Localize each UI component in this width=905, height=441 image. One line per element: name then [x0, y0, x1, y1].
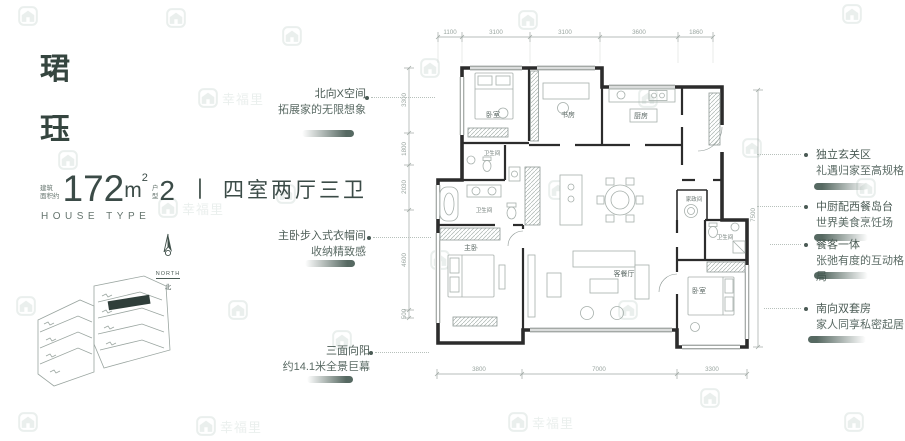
type-number: 2	[159, 176, 175, 206]
separator-bar: 丨	[189, 174, 211, 206]
room-label-bedroom-tl: 卧室	[486, 110, 500, 119]
house-logo-icon	[844, 412, 864, 432]
house-logo-icon	[18, 412, 38, 432]
svg-text:4600: 4600	[401, 253, 408, 267]
leader-dot	[804, 153, 808, 157]
dimension-left: 3300 1800 2030 4600 500	[401, 66, 414, 320]
leader-line	[757, 206, 801, 207]
svg-text:3300: 3300	[705, 366, 719, 373]
room-label-bath-right: 卫生间	[717, 233, 734, 241]
annotation-south-suites: 南向双套房 家人同享私密起居	[816, 301, 904, 333]
leader-line	[373, 237, 431, 238]
house-logo-icon	[18, 6, 38, 26]
dimension-bottom: 3800 7000 3300	[435, 366, 749, 379]
watermark	[18, 412, 38, 432]
svg-text:3600: 3600	[632, 29, 646, 36]
room-layout-text: 四室两厅三卫	[223, 176, 367, 206]
watermark: 幸福里	[508, 412, 574, 432]
gradient-tag	[808, 336, 866, 343]
house-logo-icon	[196, 416, 216, 436]
room-label-bath-upper: 卫生间	[484, 149, 501, 157]
leader-dot	[369, 351, 373, 355]
watermark	[228, 300, 248, 320]
floorplan-page: 幸福里幸福里幸福里幸福里 珺 珏 建筑 面积约 172 m2 户 型 2 丨 四…	[0, 0, 905, 441]
watermark	[18, 6, 38, 26]
svg-text:7000: 7000	[592, 366, 606, 373]
type-prefix: 户 型	[152, 185, 159, 206]
house-logo-icon	[166, 8, 186, 28]
gradient-tag	[814, 183, 868, 190]
leader-line	[770, 244, 801, 245]
room-label-bedroom-br: 卧室	[692, 286, 706, 295]
svg-text:1100: 1100	[443, 29, 457, 36]
house-logo-icon	[842, 4, 862, 24]
house-logo-icon	[228, 300, 248, 320]
watermark	[166, 8, 186, 28]
watermark-text: 幸福里	[220, 417, 262, 436]
watermark-text: 幸福里	[532, 413, 574, 432]
dimension-right: 7500	[750, 88, 763, 349]
annotation-three-sided-sun: 三面向阳 约14.1米全景巨幕	[200, 343, 370, 375]
watermark: 幸福里	[196, 416, 262, 436]
leader-dot	[367, 236, 371, 240]
leader-line	[371, 97, 435, 98]
leader-line	[757, 154, 801, 155]
svg-text:3300: 3300	[401, 93, 408, 107]
svg-text:3100: 3100	[489, 29, 503, 36]
house-logo-icon	[508, 412, 528, 432]
gradient-tag	[305, 260, 355, 267]
site-key-plan	[30, 272, 182, 394]
annotation-north-space: 北向X空间 拓展家的无限想象	[196, 86, 366, 118]
svg-text:500: 500	[401, 308, 408, 319]
annotation-kitchen-island: 中厨配西餐岛台 世界美食烹饪场	[816, 199, 893, 231]
highlighted-unit	[108, 295, 151, 310]
floor-plan: 1100 3100 3100 3600 1860 3800 7000 3300	[395, 15, 775, 403]
watermark	[282, 26, 302, 46]
room-label-utility: 家政间	[686, 195, 703, 203]
house-type-subtitle: HOUSE TYPE	[41, 211, 150, 222]
svg-text:3100: 3100	[558, 29, 572, 36]
svg-text:2030: 2030	[401, 180, 408, 194]
area-unit: m2	[124, 163, 148, 206]
house-logo-icon	[282, 26, 302, 46]
room-label-study: 书房	[561, 110, 575, 119]
leader-dot	[804, 205, 808, 209]
area-prefix: 建筑 面积约	[40, 185, 60, 206]
watermark	[844, 412, 864, 432]
watermark	[842, 4, 862, 24]
gradient-tag	[814, 272, 868, 279]
annotation-foyer: 独立玄关区 礼遇归家至高规格	[816, 147, 904, 179]
room-label-kitchen: 厨房	[634, 111, 648, 120]
room-label-bath-master: 卫生间	[476, 206, 493, 214]
svg-text:1860: 1860	[689, 29, 703, 36]
room-label-master-bedroom: 主卧	[464, 243, 478, 252]
svg-text:1800: 1800	[401, 142, 408, 156]
project-title-char-2: 珏	[40, 104, 72, 148]
room-label-living-dining: 客餐厅	[614, 269, 635, 278]
leader-dot	[365, 96, 369, 100]
unit-spec-line: 建筑 面积约 172 m2 户 型 2 丨 四室两厅三卫	[40, 163, 367, 206]
leader-dot	[804, 243, 808, 247]
leader-line	[764, 308, 801, 309]
north-arrow-icon	[158, 233, 178, 257]
gradient-tag	[302, 130, 354, 137]
leader-line	[375, 352, 429, 353]
area-value: 172	[63, 172, 125, 206]
leader-dot	[804, 307, 808, 311]
svg-text:7500: 7500	[750, 208, 757, 222]
dimension-top: 1100 3100 3100 3600 1860	[436, 29, 715, 63]
gradient-tag	[307, 376, 353, 383]
project-title-char-1: 珺	[40, 44, 72, 88]
svg-text:3800: 3800	[472, 366, 486, 373]
annotation-walkin-closet: 主卧步入式衣帽间 收纳精致感	[196, 228, 366, 260]
area-superscript: 2	[142, 172, 148, 184]
